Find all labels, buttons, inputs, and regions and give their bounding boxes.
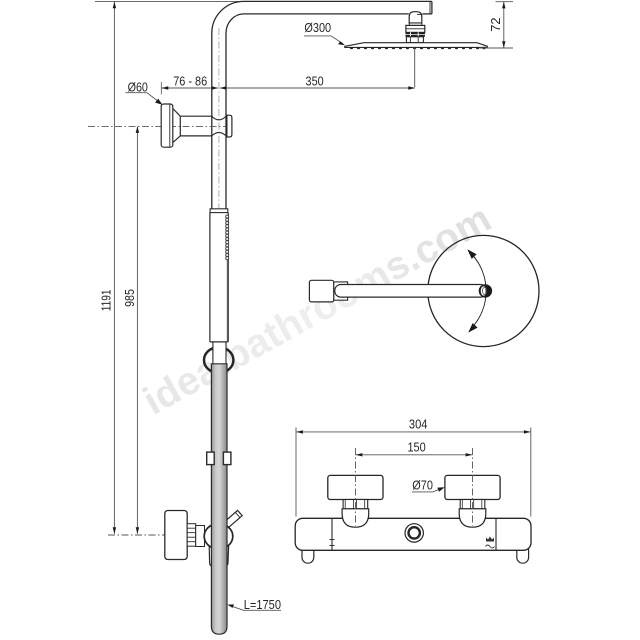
svg-text:985: 985 (123, 289, 137, 307)
svg-text:Ø60: Ø60 (128, 80, 148, 94)
svg-text:72: 72 (489, 17, 503, 31)
svg-text:Ø70: Ø70 (412, 478, 433, 492)
svg-text:76 - 86: 76 - 86 (173, 75, 207, 89)
svg-text:1191: 1191 (100, 290, 114, 312)
svg-text:L=1750: L=1750 (244, 598, 281, 612)
svg-text:150: 150 (407, 441, 425, 455)
svg-text:350: 350 (306, 75, 324, 89)
svg-text:304: 304 (409, 418, 428, 432)
svg-text:Ø300: Ø300 (304, 21, 331, 35)
